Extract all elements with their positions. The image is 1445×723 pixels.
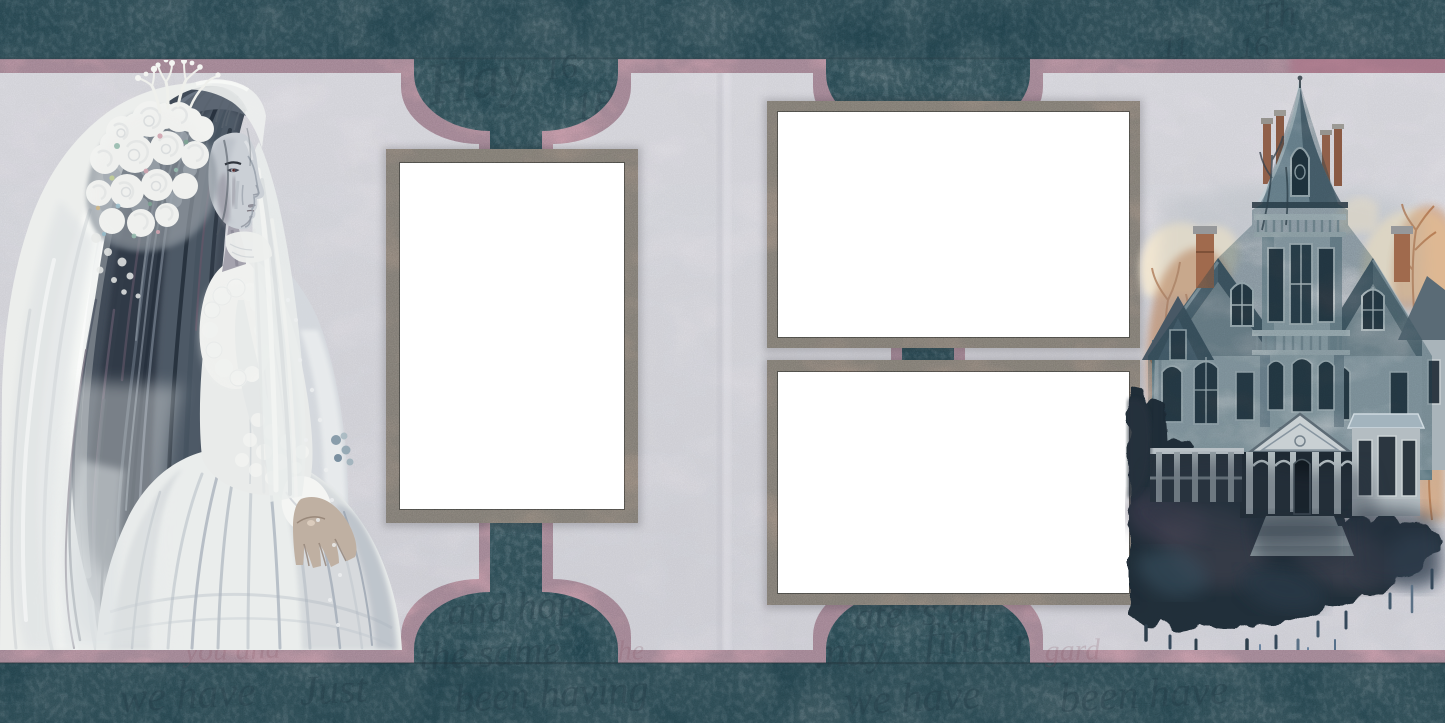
svg-text:we have: we have (843, 672, 982, 723)
svg-text:Just: Just (298, 665, 369, 715)
svg-text:16: 16 (542, 48, 580, 88)
svg-text:been have: been have (1058, 667, 1229, 722)
svg-text:he: he (617, 635, 645, 667)
svg-text:we have: we have (118, 669, 257, 722)
svg-text:Hay: Hay (422, 39, 532, 118)
svg-text:find: find (922, 611, 995, 665)
svg-text:gard: gard (1044, 633, 1102, 668)
